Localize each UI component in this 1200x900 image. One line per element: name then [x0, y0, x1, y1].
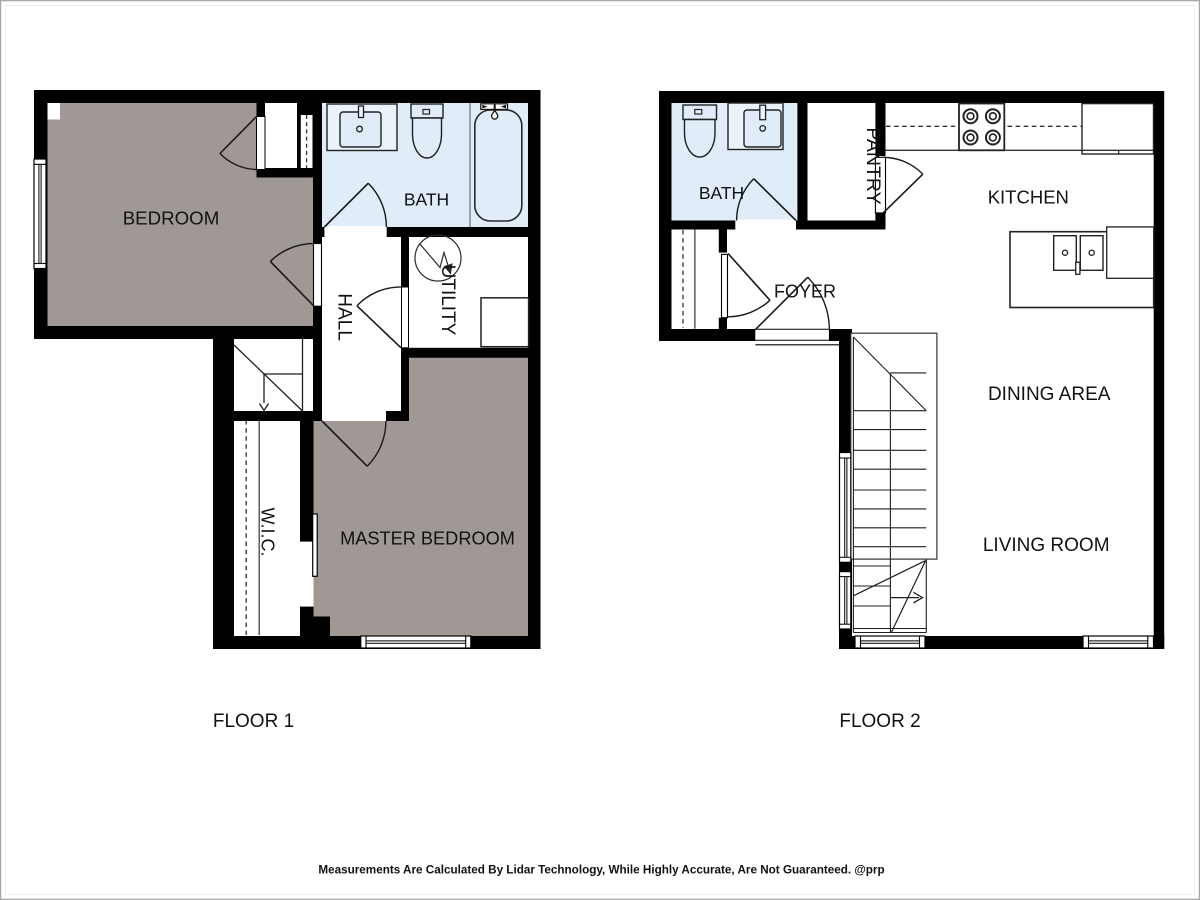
svg-text:BEDROOM: BEDROOM: [123, 208, 220, 229]
svg-text:DINING AREA: DINING AREA: [988, 384, 1111, 405]
svg-text:LIVING ROOM: LIVING ROOM: [983, 535, 1110, 556]
svg-text:BATH: BATH: [404, 190, 449, 210]
svg-text:KITCHEN: KITCHEN: [988, 187, 1069, 208]
svg-text:HALL: HALL: [334, 293, 355, 341]
svg-text:FLOOR 1: FLOOR 1: [213, 711, 294, 732]
svg-text:UTILITY: UTILITY: [437, 265, 458, 336]
svg-text:BATH: BATH: [699, 183, 744, 203]
svg-text:FLOOR 2: FLOOR 2: [839, 711, 920, 732]
svg-text:PANTRY: PANTRY: [862, 127, 884, 204]
svg-text:FOYER: FOYER: [774, 282, 836, 302]
svg-text:MASTER BEDROOM: MASTER BEDROOM: [340, 529, 515, 549]
svg-text:Measurements Are Calculated By: Measurements Are Calculated By Lidar Tec…: [318, 863, 884, 876]
svg-text:W.I.C.: W.I.C.: [258, 508, 278, 557]
